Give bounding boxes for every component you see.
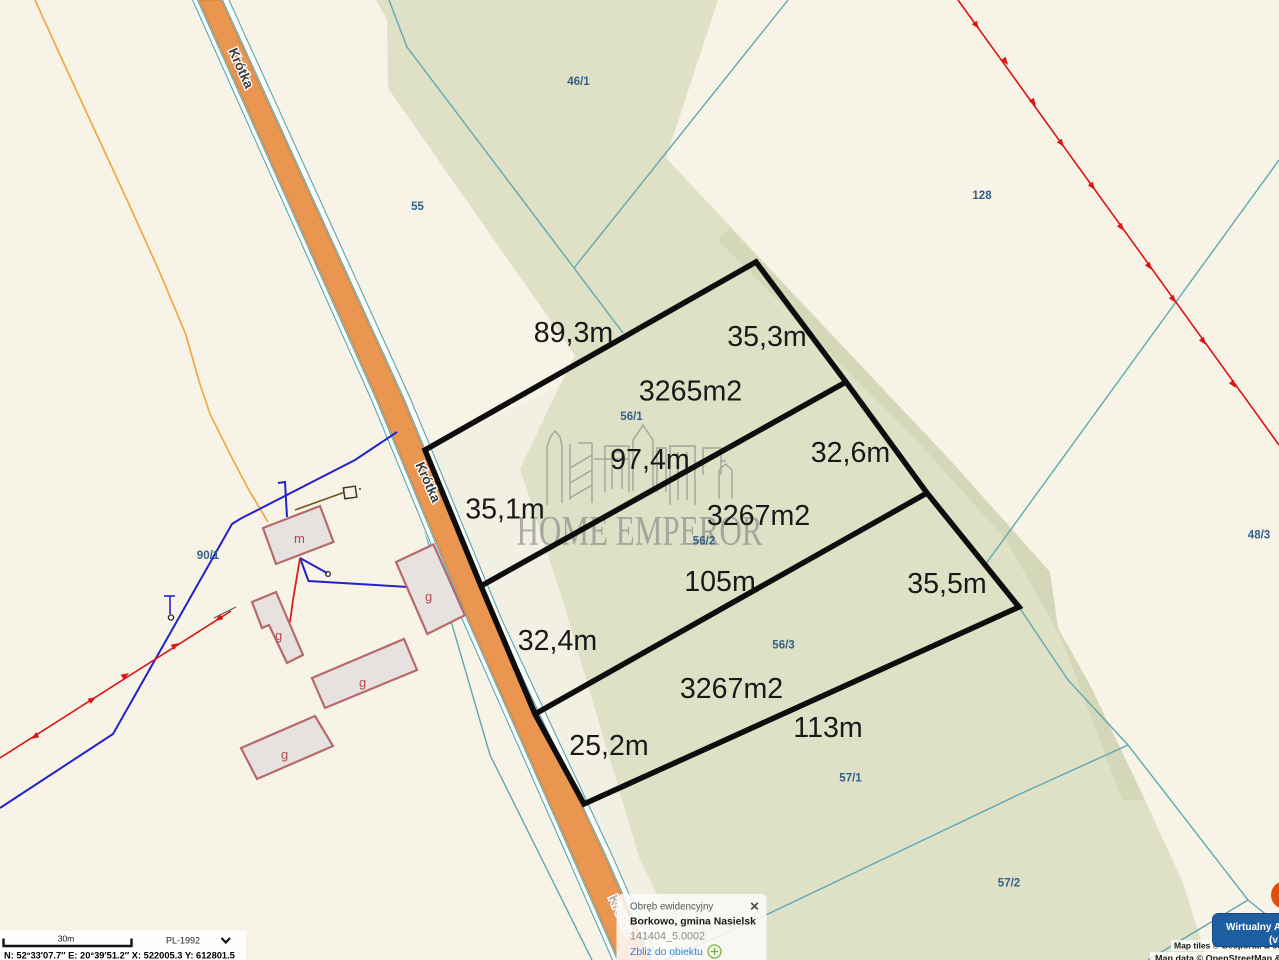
svg-text:Zbliż do obiektu: Zbliż do obiektu xyxy=(630,947,703,958)
svg-text:35,3m: 35,3m xyxy=(727,321,806,353)
svg-text:Wirtualny A: Wirtualny A xyxy=(1226,922,1279,933)
svg-text:g: g xyxy=(281,747,288,762)
svg-text:3267m2: 3267m2 xyxy=(707,500,810,532)
svg-text:35,1m: 35,1m xyxy=(465,494,544,526)
svg-text:57/1: 57/1 xyxy=(839,773,862,785)
svg-text:3267m2: 3267m2 xyxy=(680,673,783,705)
svg-text:89,3m: 89,3m xyxy=(534,317,613,349)
svg-text:g: g xyxy=(359,675,366,690)
svg-text:✕: ✕ xyxy=(750,900,760,914)
svg-text:N: 52°33′07.7″ E: 20°39′51.2″: N: 52°33′07.7″ E: 20°39′51.2″ X: 522005.… xyxy=(4,951,235,960)
svg-text:m: m xyxy=(294,531,305,546)
svg-text:48/3: 48/3 xyxy=(1248,530,1270,542)
svg-text:56/2: 56/2 xyxy=(693,536,715,548)
svg-text:32,4m: 32,4m xyxy=(518,625,597,657)
svg-text:g: g xyxy=(275,628,282,643)
svg-text:g: g xyxy=(425,589,432,604)
svg-text:30m: 30m xyxy=(58,934,75,944)
svg-text:105m: 105m xyxy=(684,566,756,598)
svg-text:46/1: 46/1 xyxy=(567,76,590,88)
svg-text:90/1: 90/1 xyxy=(197,550,220,562)
svg-text:113m: 113m xyxy=(793,712,862,744)
svg-text:56/3: 56/3 xyxy=(772,640,794,652)
svg-text:35,5m: 35,5m xyxy=(907,568,986,600)
svg-text:32,6m: 32,6m xyxy=(811,437,890,469)
svg-text:56/1: 56/1 xyxy=(620,411,643,423)
svg-text:128: 128 xyxy=(972,190,992,202)
svg-text:3265m2: 3265m2 xyxy=(639,376,742,408)
svg-text:PL-1992: PL-1992 xyxy=(166,936,200,946)
svg-text:57/2: 57/2 xyxy=(998,878,1020,890)
svg-text:Borkowo, gmina Nasielsk: Borkowo, gmina Nasielsk xyxy=(630,917,756,928)
svg-text:55: 55 xyxy=(411,201,424,213)
svg-text:141404_5.0002: 141404_5.0002 xyxy=(630,931,705,943)
svg-text:Obręb ewidencyjny: Obręb ewidencyjny xyxy=(630,902,713,913)
svg-text:97,4m: 97,4m xyxy=(610,444,689,476)
svg-text:Map data © OpenStreetMap & c: Map data © OpenStreetMap & c xyxy=(1155,954,1279,960)
svg-text:(v: (v xyxy=(1269,935,1278,946)
svg-text:25,2m: 25,2m xyxy=(569,730,648,762)
